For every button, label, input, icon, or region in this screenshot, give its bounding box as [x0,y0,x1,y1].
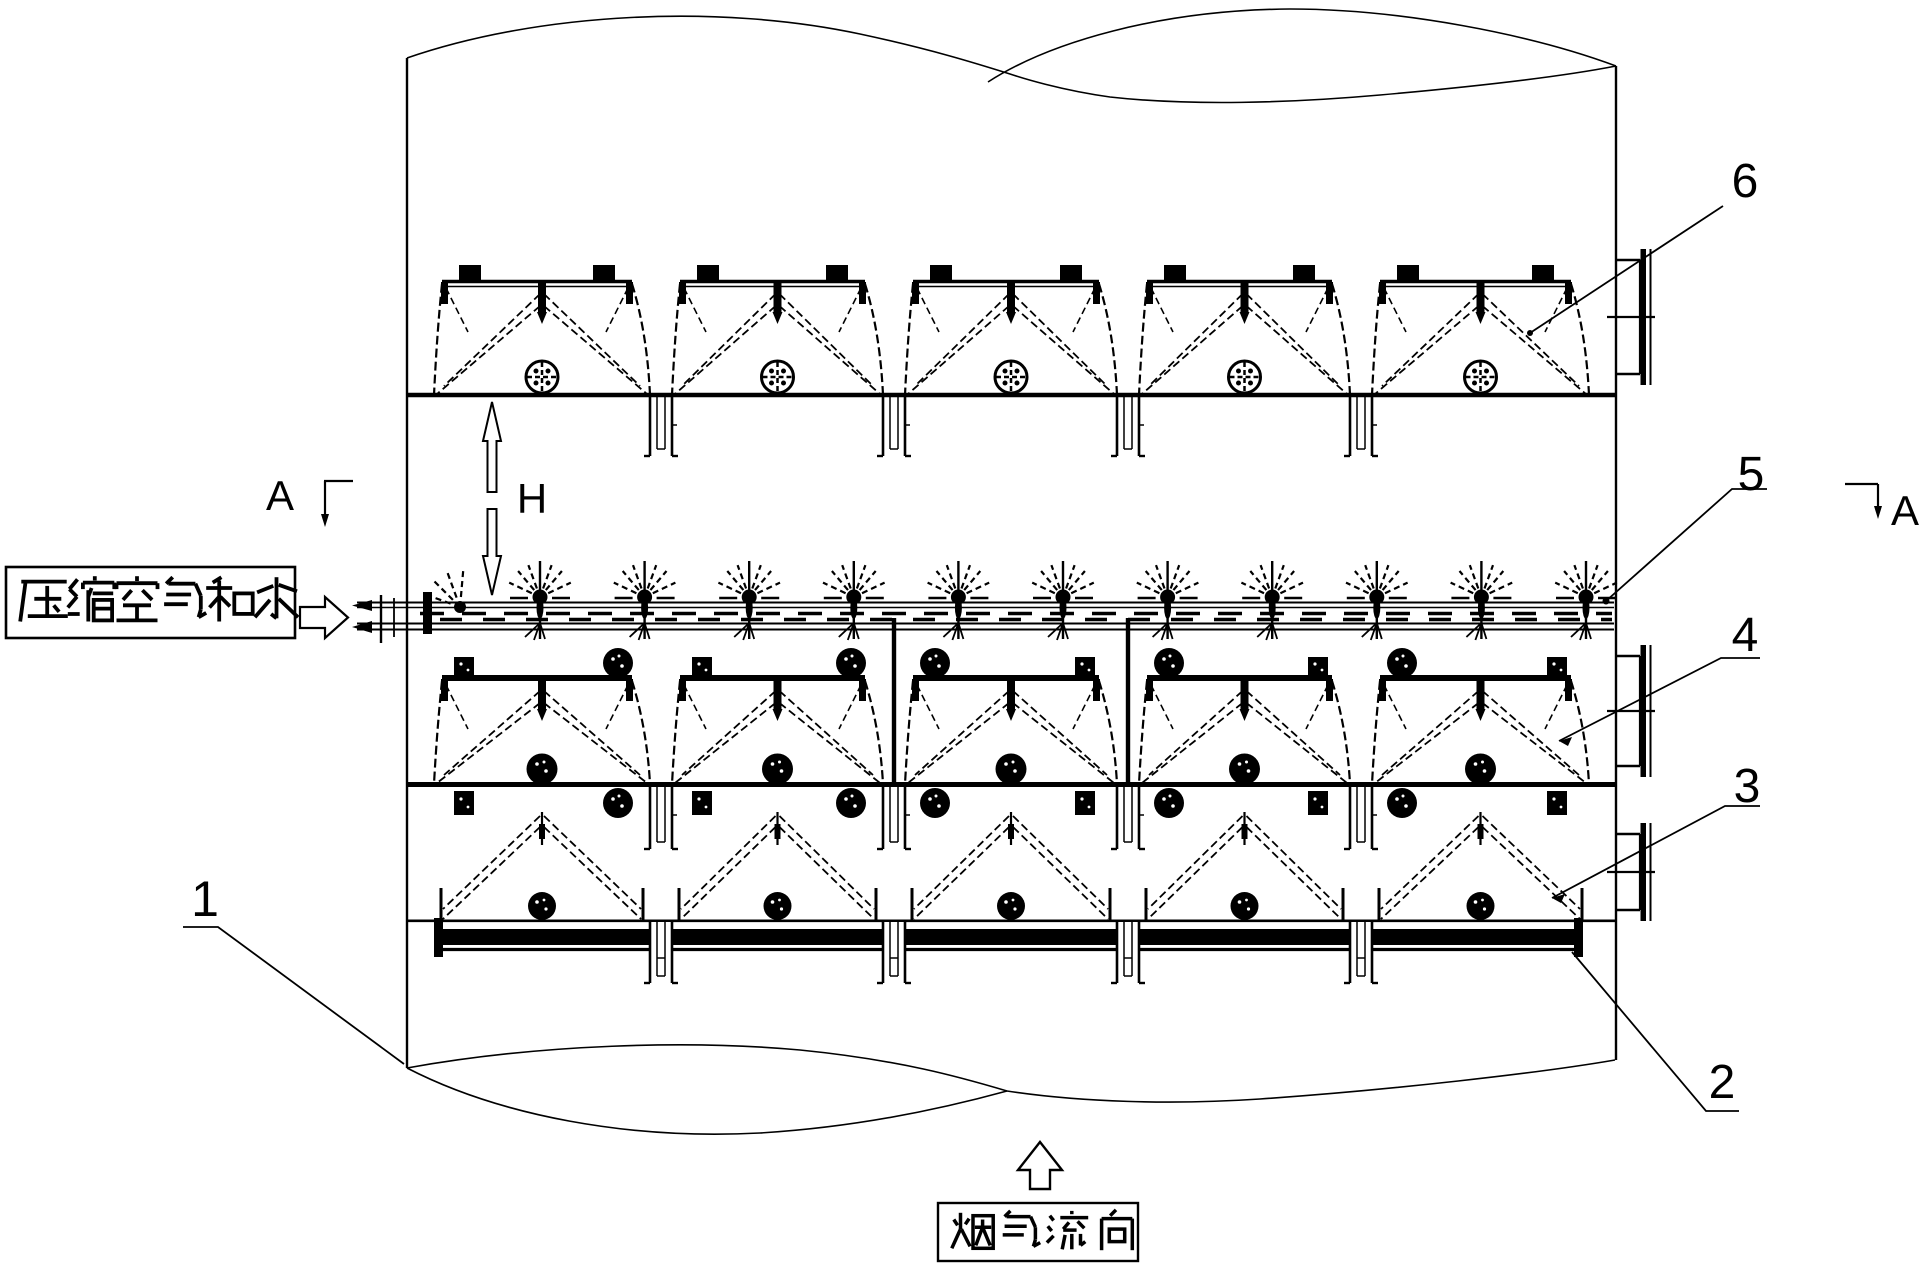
svg-text:A: A [1891,487,1919,534]
svg-text:1: 1 [191,871,219,927]
svg-text:A: A [266,472,294,519]
svg-text:3: 3 [1734,760,1761,813]
svg-text:4: 4 [1732,609,1759,662]
svg-text:2: 2 [1709,1056,1736,1109]
svg-text:H: H [517,475,547,522]
svg-text:6: 6 [1732,155,1759,208]
svg-text:5: 5 [1738,448,1765,501]
